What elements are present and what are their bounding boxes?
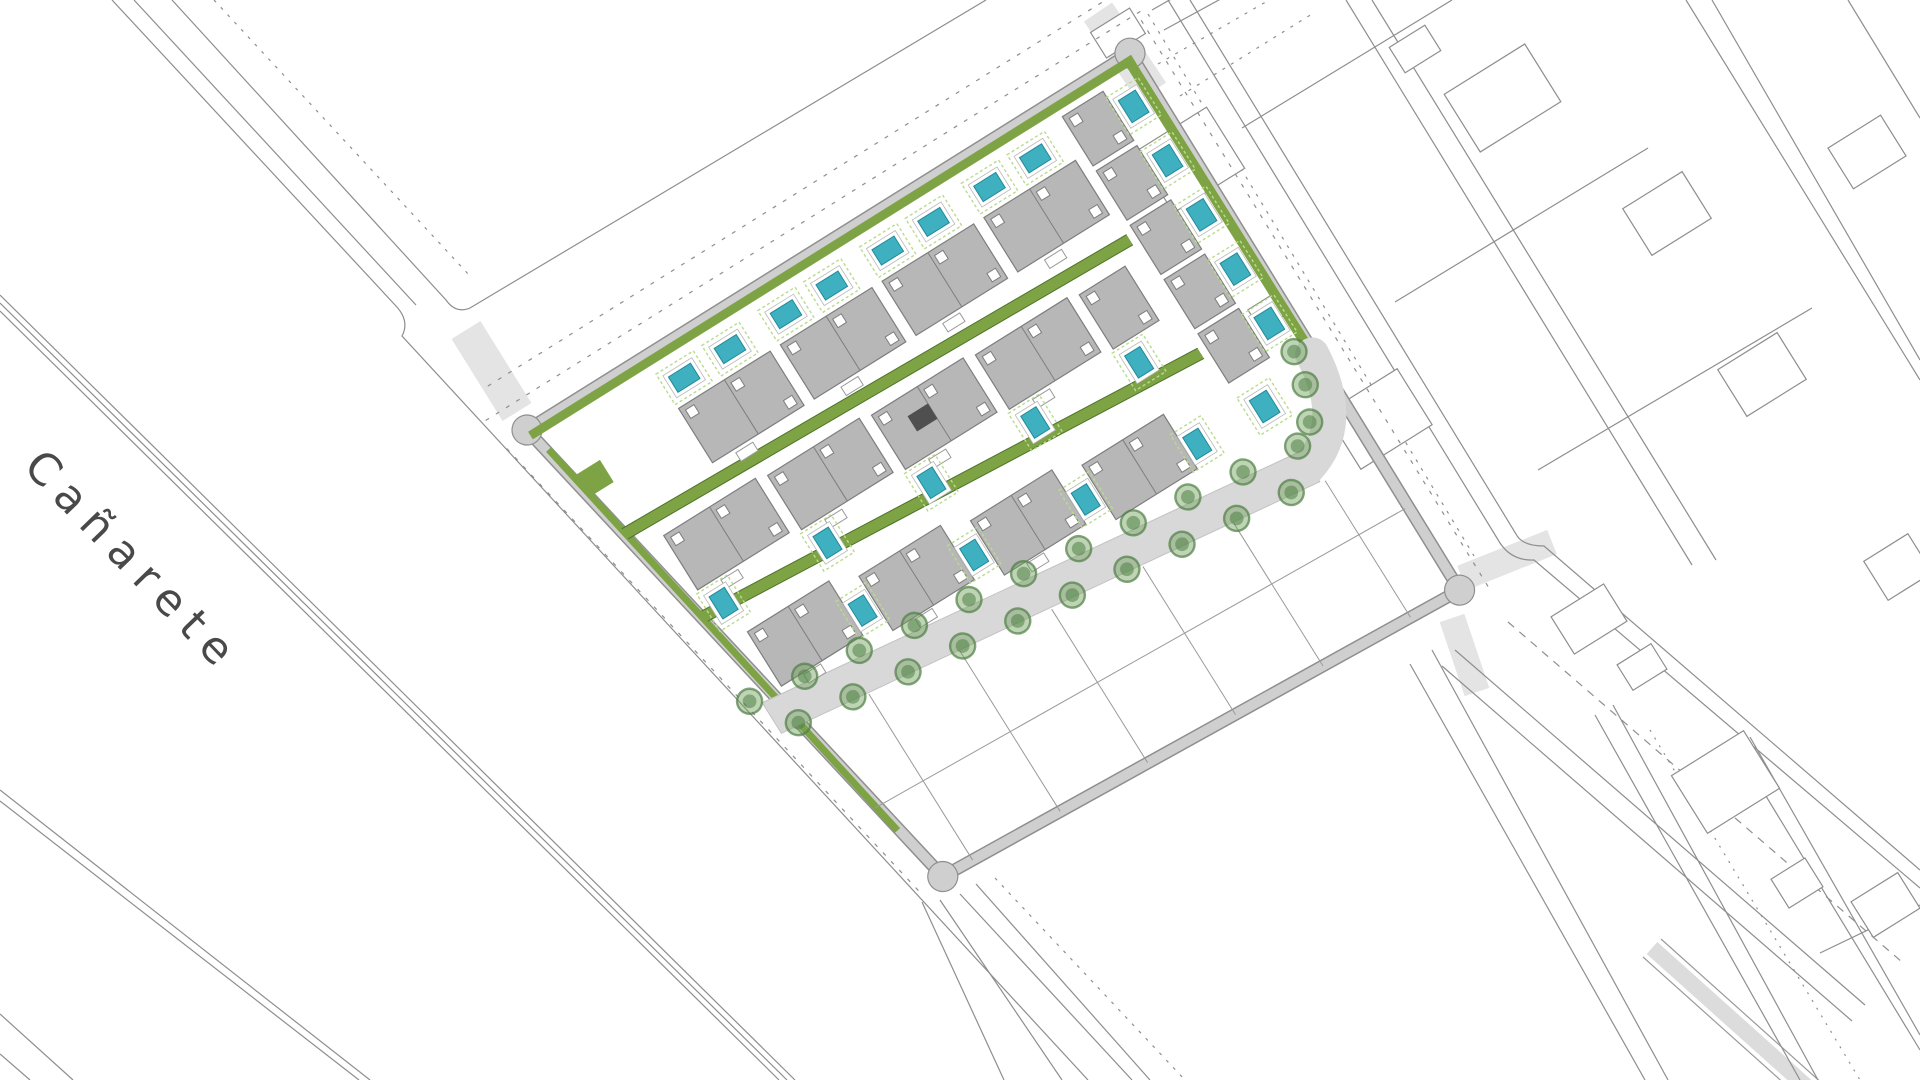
cadastre-line [0, 801, 359, 1080]
site-plan-page: Cañarete [0, 0, 1920, 1080]
development-block [471, 0, 1505, 995]
context-buildings-layer [1091, 8, 1920, 937]
crosswalk-band [1452, 618, 1477, 692]
cadastre-line [0, 790, 370, 1080]
parcel-line [869, 694, 973, 860]
cadastre-line [995, 878, 1185, 1080]
road-band [1652, 948, 1902, 1080]
context-building [1718, 333, 1807, 417]
cadastre-line [1712, 0, 1920, 360]
cadastre-path [172, 0, 986, 310]
context-building [1828, 115, 1906, 189]
cadastre-line [1442, 666, 1852, 1021]
context-building [1617, 644, 1667, 691]
cadastre-line [1242, 0, 1452, 128]
cadastre-line [0, 311, 779, 1080]
context-building [1671, 731, 1779, 834]
cadastre-line [1164, 0, 1270, 30]
cadastre-line [1686, 0, 1920, 380]
context-building [1623, 172, 1712, 256]
cadastre-line [0, 303, 787, 1080]
context-building [1771, 858, 1823, 908]
context-building [1444, 44, 1561, 152]
cadastre-line [214, 0, 470, 276]
parcel-line [1143, 566, 1236, 714]
parcel-line [1052, 609, 1148, 762]
crosswalk-band [466, 330, 517, 412]
cadastre-line [1158, 0, 1290, 64]
cadastre-line [1848, 0, 1920, 118]
cadastre-line [1432, 650, 1668, 1080]
site-plan-svg: Cañarete [0, 0, 1920, 1080]
cadastre-line [0, 295, 795, 1080]
cadastre-line [1180, 14, 1312, 96]
cadastre-line [134, 0, 416, 305]
context-building [1389, 25, 1441, 73]
cadastre-line [940, 900, 1062, 1080]
cadastre-line [0, 1054, 30, 1080]
road-band-layer [1643, 939, 1911, 1080]
cadastre-line [1152, 0, 1250, 10]
cadastre-line [0, 1014, 73, 1080]
crosswalk-band [1462, 542, 1552, 578]
parcel-line [1234, 524, 1323, 666]
cadastre-line [960, 894, 1132, 1080]
cadastre-line [1395, 148, 1648, 302]
cadastre-line [1410, 664, 1645, 1080]
street-label: Cañarete [14, 440, 251, 683]
context-building [1864, 534, 1920, 601]
cadastre-line [976, 884, 1150, 1080]
context-building [1551, 584, 1627, 654]
